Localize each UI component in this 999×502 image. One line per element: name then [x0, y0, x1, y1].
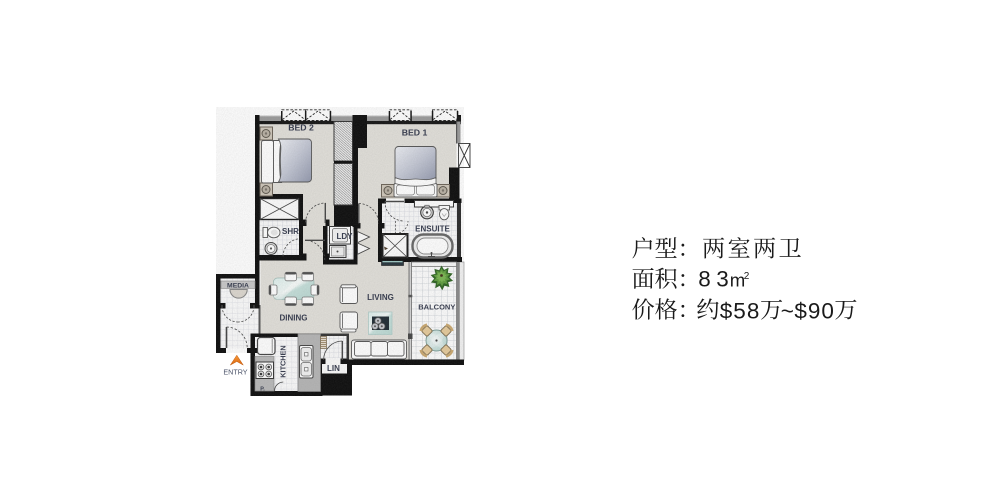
svg-text:BALCONY: BALCONY	[418, 303, 455, 312]
svg-text:DINING: DINING	[280, 314, 308, 323]
svg-text:SHR: SHR	[282, 227, 299, 236]
svg-text:MEDIA: MEDIA	[227, 283, 249, 290]
svg-text:KITCHEN: KITCHEN	[278, 345, 287, 377]
svg-text:$58: $58	[720, 298, 761, 323]
svg-text:LIN: LIN	[327, 364, 340, 373]
svg-text:3: 3	[716, 267, 729, 292]
svg-text:BED 1: BED 1	[402, 128, 428, 138]
svg-text:LDY: LDY	[337, 232, 354, 241]
svg-text:ENSUITE: ENSUITE	[415, 224, 450, 233]
svg-text:2: 2	[744, 271, 750, 282]
svg-text:BED 2: BED 2	[288, 123, 314, 133]
svg-text:ENTRY: ENTRY	[223, 368, 247, 377]
svg-text:~: ~	[781, 298, 794, 323]
svg-text:LIVING: LIVING	[367, 293, 394, 302]
svg-text:P.: P.	[260, 387, 265, 393]
svg-text:8: 8	[698, 267, 711, 292]
svg-text:$90: $90	[794, 298, 835, 323]
